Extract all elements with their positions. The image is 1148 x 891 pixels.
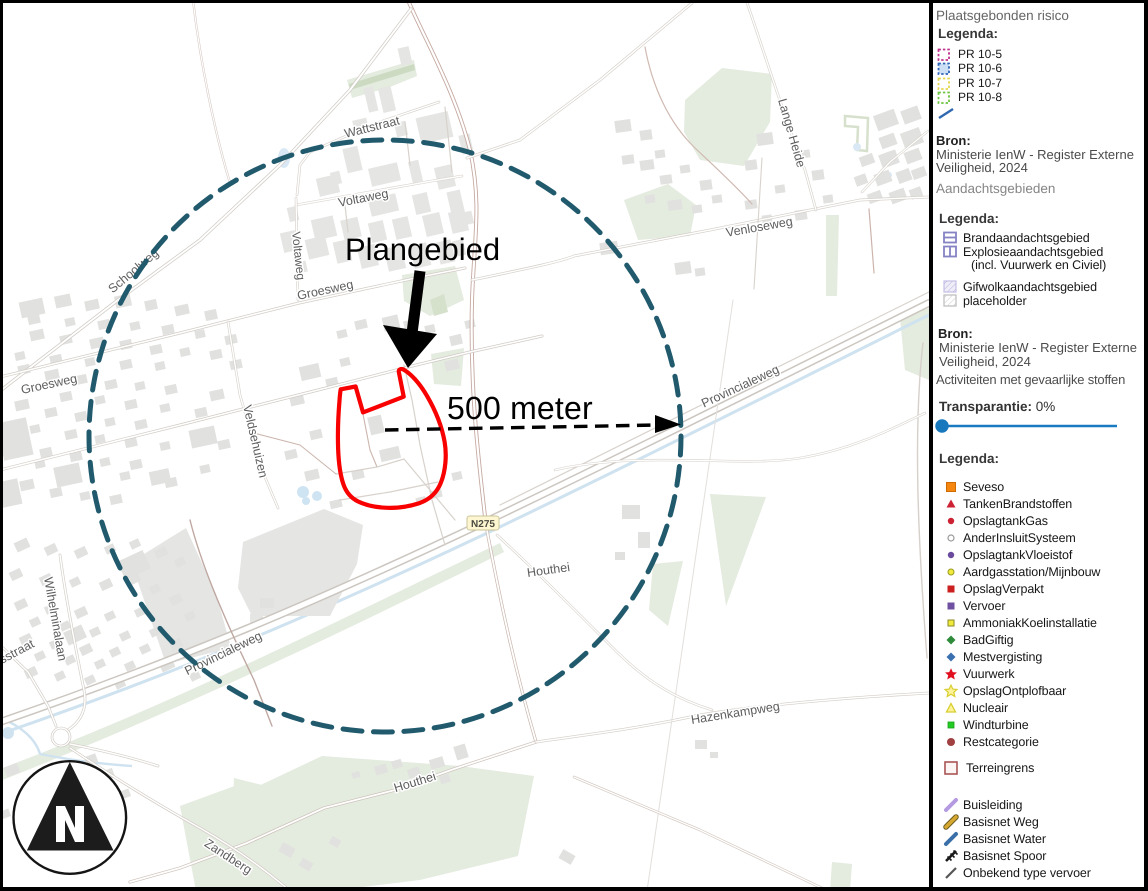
svg-text:Plangebied: Plangebied xyxy=(345,232,500,267)
svg-text:500 meter: 500 meter xyxy=(447,390,593,426)
svg-text:N275: N275 xyxy=(471,519,495,530)
